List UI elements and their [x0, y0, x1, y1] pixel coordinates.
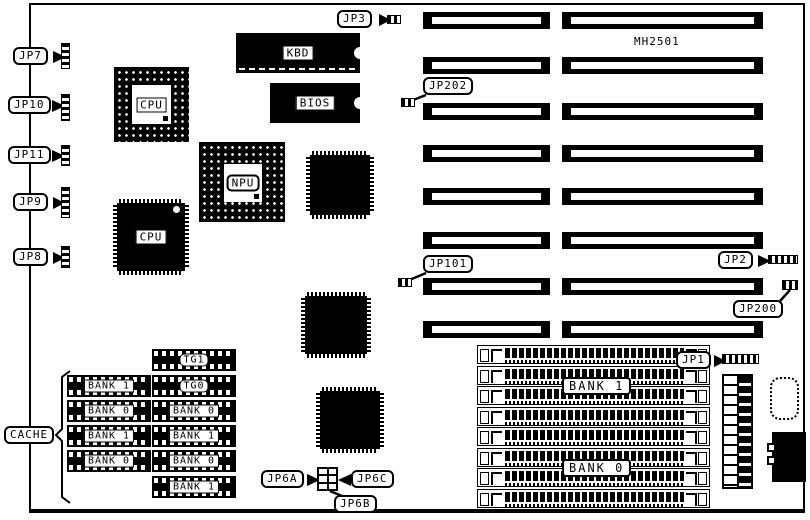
jp6-pin — [329, 484, 337, 489]
cache-chip-left_column-2: BANK 1 — [67, 425, 151, 447]
simm-hole-right — [698, 390, 707, 403]
slot-contact-stripe — [571, 62, 754, 69]
bios-chip: BIOS — [270, 83, 360, 123]
cache-chip-label: TG0 — [179, 380, 208, 393]
npu-socket-pin1-marker — [254, 194, 259, 199]
expansion-slot-left-6 — [423, 232, 550, 249]
slot-contact-stripe — [432, 326, 541, 333]
simm-bank1-label: BANK 1 — [562, 377, 631, 395]
expansion-slot-right-1 — [562, 12, 763, 29]
simm-hole-right — [698, 452, 707, 465]
cache-chip-right_column-5: BANK 1 — [152, 476, 236, 498]
simm-socket-5 — [477, 427, 710, 446]
simm-clip-right — [686, 431, 697, 444]
simm-contacts — [505, 430, 684, 445]
jumper-block-jp8 — [61, 246, 70, 268]
jumper-block-jp202 — [401, 98, 415, 107]
cache-chip-right_column-0: TG1 — [152, 349, 236, 371]
slot-contact-stripe — [432, 17, 541, 24]
simm-hole-left — [480, 472, 489, 485]
simm-clip-right — [686, 472, 697, 485]
expansion-slot-left-2 — [423, 57, 550, 74]
callout-jp3: JP3 — [337, 10, 372, 28]
cache-chip-left_column-1: BANK 0 — [67, 400, 151, 422]
jp6-jumper-block — [317, 467, 338, 491]
cache-chip-right_column-4: BANK 0 — [152, 450, 236, 472]
simm-clip-left — [491, 390, 502, 403]
callout-jp10: JP10 — [8, 96, 51, 114]
simm-hole-left — [480, 493, 489, 506]
external-port-connector — [772, 432, 806, 482]
cpu-socket-well: CPU — [132, 85, 171, 124]
slot-contact-stripe — [432, 62, 541, 69]
jumper-block-jp10 — [61, 94, 70, 121]
simm-hole-left — [480, 390, 489, 403]
slot-contact-stripe — [571, 150, 754, 157]
expansion-slot-right-8 — [562, 321, 763, 338]
slot-contact-stripe — [571, 283, 754, 290]
callout-jp1: JP1 — [676, 351, 711, 369]
kbd-chip-notch — [354, 47, 360, 59]
callout-jp6a: JP6A — [261, 470, 304, 488]
simm-clip-left — [491, 431, 502, 444]
qfp-pins-bottom — [312, 215, 368, 219]
simm-clip-left — [491, 493, 502, 506]
jumper-block-jp200 — [782, 280, 798, 290]
jumper-block-jp2 — [768, 255, 798, 264]
cache-chip-right_column-1: TG0 — [152, 375, 236, 397]
qfp-body — [305, 296, 367, 354]
expansion-slot-left-1 — [423, 12, 550, 29]
simm-contacts — [505, 410, 684, 425]
simm-socket-4 — [477, 407, 710, 426]
cache-chip-label: BANK 0 — [84, 455, 134, 468]
qfp-pins-bottom — [307, 354, 365, 358]
slot-contact-stripe — [432, 108, 541, 115]
power-connector-pins — [724, 376, 739, 487]
slot-contact-stripe — [432, 283, 541, 290]
simm-hole-left — [480, 452, 489, 465]
qfp-body — [320, 391, 380, 449]
cpu-qfp-label: CPU — [136, 230, 167, 245]
simm-hole-left — [480, 349, 489, 362]
callout-jp8: JP8 — [13, 248, 48, 266]
keyboard-din-connector — [770, 377, 799, 420]
simm-clip-right — [686, 493, 697, 506]
cache-chip-label: BANK 0 — [84, 405, 134, 418]
jumper-block-jp9 — [61, 187, 70, 218]
simm-socket-8 — [477, 489, 710, 508]
simm-hole-right — [698, 370, 707, 383]
kbd-chip-label: KBD — [283, 46, 314, 61]
callout-jp200: JP200 — [733, 300, 783, 318]
jp6-pin — [329, 469, 337, 474]
cache-chip-label: BANK 1 — [84, 380, 134, 393]
npu-socket-label: NPU — [227, 175, 260, 192]
simm-hole-right — [698, 472, 707, 485]
simm-clip-left — [491, 452, 502, 465]
slot-contact-stripe — [571, 193, 754, 200]
callout-jp101: JP101 — [423, 255, 473, 273]
cache-chip-label: BANK 1 — [84, 430, 134, 443]
cache-chip-label: TG1 — [179, 354, 208, 367]
connector-tab — [767, 443, 776, 452]
jumper-block-jp11 — [61, 145, 70, 166]
simm-hole-left — [480, 370, 489, 383]
slot-contact-stripe — [432, 237, 541, 244]
expansion-slot-left-7 — [423, 278, 550, 295]
cpu-qfp-chip: CPU — [113, 199, 189, 275]
expansion-slot-left-8 — [423, 321, 550, 338]
qfp-body — [310, 155, 370, 215]
slot-contact-stripe — [571, 326, 754, 333]
cpu-socket: CPU — [114, 67, 189, 142]
cache-chip-label: BANK 1 — [169, 430, 219, 443]
jumper-block-jp3 — [387, 15, 401, 24]
slot-contact-stripe — [432, 193, 541, 200]
simm-contacts — [505, 348, 684, 363]
expansion-slot-right-3 — [562, 103, 763, 120]
asic-chip-1 — [306, 151, 374, 219]
qfp-pins-right — [367, 298, 371, 352]
qfp-pins-right — [370, 157, 374, 213]
kbd-socket-line — [239, 68, 357, 70]
asic-chip-3 — [316, 387, 384, 453]
asic-chip-2 — [301, 292, 371, 358]
jumper-block-jp1 — [722, 354, 759, 364]
simm-clip-right — [686, 370, 697, 383]
jumper-block-jp101 — [398, 278, 412, 287]
callout-jp6c: JP6C — [351, 470, 394, 488]
cpu-pin1-dot — [173, 206, 180, 213]
callout-jp202: JP202 — [423, 77, 473, 95]
simm-hole-left — [480, 431, 489, 444]
slot-contact-stripe — [571, 108, 754, 115]
callout-jp2: JP2 — [718, 251, 753, 269]
callout-jp7: JP7 — [13, 47, 48, 65]
slot-contact-stripe — [432, 150, 541, 157]
simm-clip-left — [491, 411, 502, 424]
simm-clip-right — [686, 452, 697, 465]
callout-jp11: JP11 — [8, 146, 51, 164]
motherboard-diagram: MH2501 KBD BIOS CPU NPU JP7 JP10 JP11 JP… — [0, 0, 810, 520]
cache-chip-label: BANK 1 — [169, 481, 219, 494]
expansion-slot-right-7 — [562, 278, 763, 295]
power-connector — [722, 374, 753, 489]
npu-socket: NPU — [199, 142, 285, 222]
slot-contact-stripe — [571, 17, 754, 24]
simm-bank0-label: BANK 0 — [562, 459, 631, 477]
expansion-slot-right-4 — [562, 145, 763, 162]
jp6-pin — [329, 476, 337, 481]
simm-hole-right — [698, 411, 707, 424]
expansion-slot-right-2 — [562, 57, 763, 74]
slot-contact-stripe — [571, 237, 754, 244]
cache-chip-label: BANK 0 — [169, 405, 219, 418]
kbd-chip: KBD — [236, 33, 360, 73]
power-connector-body — [739, 376, 751, 487]
simm-contacts — [505, 492, 684, 507]
jp6-pin — [319, 476, 327, 481]
simm-hole-left — [480, 411, 489, 424]
cache-chip-label: BANK 0 — [169, 455, 219, 468]
cache-label: CACHE — [4, 426, 54, 444]
simm-clip-left — [491, 472, 502, 485]
cpu-socket-label: CPU — [136, 97, 167, 112]
expansion-slot-left-5 — [423, 188, 550, 205]
expansion-slot-right-5 — [562, 188, 763, 205]
board-model-label: MH2501 — [634, 35, 680, 48]
cache-chip-left_column-0: BANK 1 — [67, 375, 151, 397]
cpu-socket-pin1-marker — [163, 116, 168, 121]
simm-clip-left — [491, 349, 502, 362]
npu-socket-well: NPU — [224, 164, 262, 202]
callout-jp9: JP9 — [13, 193, 48, 211]
simm-clip-right — [686, 411, 697, 424]
simm-clip-right — [686, 390, 697, 403]
cache-chip-right_column-3: BANK 1 — [152, 425, 236, 447]
jp6-pin — [319, 484, 327, 489]
jp6-pin — [319, 469, 327, 474]
expansion-slot-left-3 — [423, 103, 550, 120]
cache-chip-right_column-2: BANK 0 — [152, 400, 236, 422]
jumper-block-jp7 — [61, 43, 70, 69]
qfp-pins-right — [185, 205, 189, 269]
expansion-slot-left-4 — [423, 145, 550, 162]
simm-hole-right — [698, 493, 707, 506]
qfp-pins-bottom — [322, 449, 378, 453]
connector-tab — [767, 456, 776, 465]
bios-chip-label: BIOS — [296, 96, 335, 111]
simm-hole-right — [698, 431, 707, 444]
qfp-pins-right — [380, 393, 384, 447]
qfp-pins-bottom — [119, 271, 183, 275]
cache-chip-left_column-3: BANK 0 — [67, 450, 151, 472]
expansion-slot-right-6 — [562, 232, 763, 249]
callout-jp6b: JP6B — [334, 495, 377, 513]
bios-chip-notch — [354, 97, 360, 109]
simm-clip-left — [491, 370, 502, 383]
